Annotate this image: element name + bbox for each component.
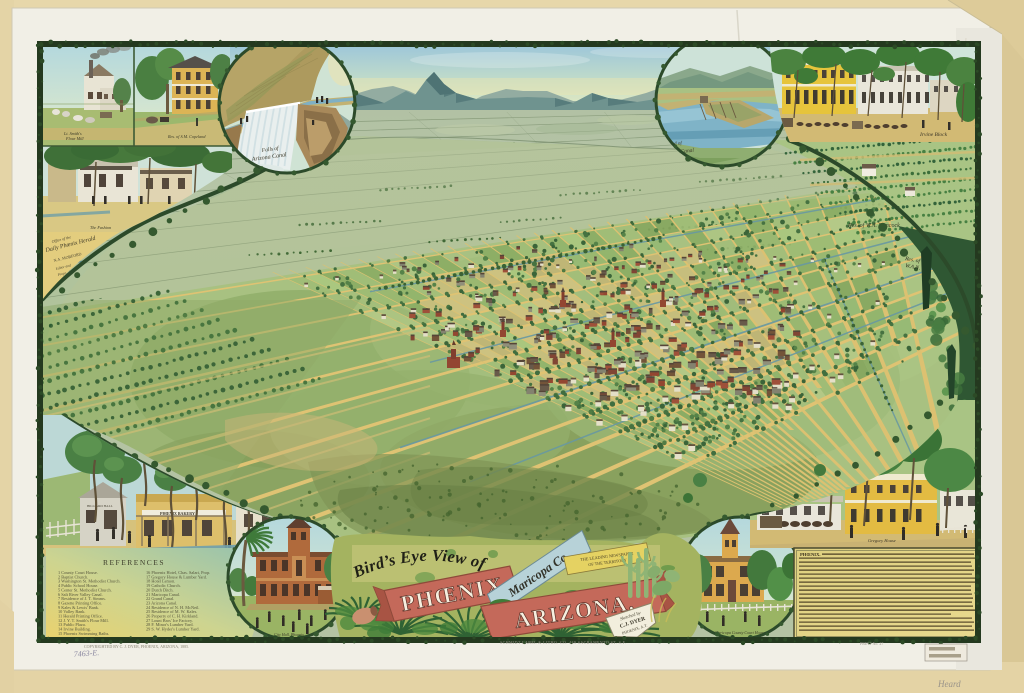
svg-text:SCHMIDT LABEL & LITHO. CO. 449: SCHMIDT LABEL & LITHO. CO. 449 SACRAMENT… [500,640,626,645]
svg-text:Res. of S.M. Copeland: Res. of S.M. Copeland [167,134,206,139]
svg-text:PRINT No. 27: PRINT No. 27 [860,641,883,646]
svg-text:PHŒNIX.: PHŒNIX. [800,552,821,557]
svg-text:29 S. W. Hyder's Lumber Yard.: 29 S. W. Hyder's Lumber Yard. [146,627,200,632]
svg-text:7463-E.: 7463-E. [73,648,99,659]
svg-text:Flour Mill: Flour Mill [65,136,84,141]
svg-text:Res. of W.A. Hancock: Res. of W.A. Hancock [847,222,900,229]
svg-text:REFERENCES: REFERENCES [103,558,165,567]
svg-text:The Fashion: The Fashion [90,225,111,230]
svg-text:15 Phoenix Swimming Baths.: 15 Phoenix Swimming Baths. [58,631,109,636]
svg-text:Irvine Block: Irvine Block [919,132,948,138]
svg-text:BILLIARD HALL: BILLIARD HALL [87,504,113,508]
svg-text:Heard: Heard [937,679,961,689]
svg-text:Maricopa County Court House: Maricopa County Court House [714,630,765,635]
svg-text:Gregory House: Gregory House [868,538,896,543]
